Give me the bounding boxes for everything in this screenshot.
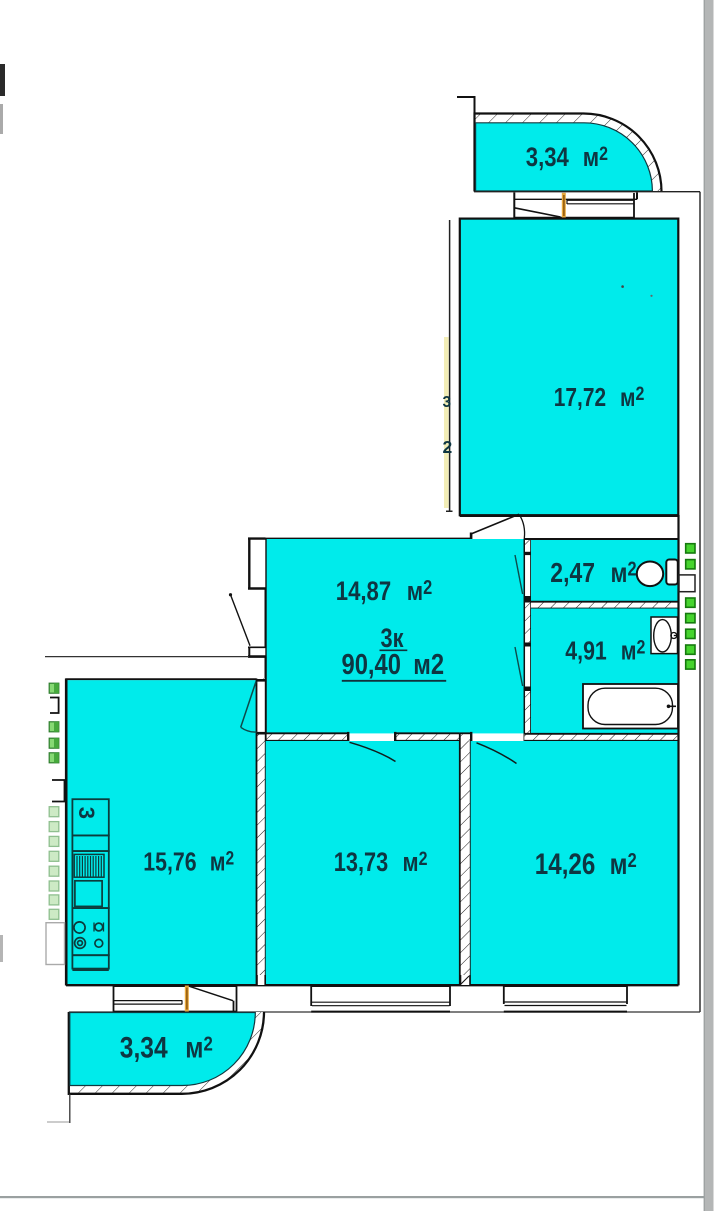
svg-text:14,26м2: 14,26м2: [535, 848, 637, 881]
svg-text:90,40м2: 90,40м2: [342, 648, 445, 681]
svg-text:13,73м2: 13,73м2: [334, 847, 428, 877]
svg-text:3: 3: [443, 394, 452, 411]
svg-text:4,91м2: 4,91м2: [565, 636, 645, 666]
svg-text:3,34м2: 3,34м2: [120, 1030, 213, 1064]
svg-text:3,34м2: 3,34м2: [526, 142, 608, 172]
svg-text:17,72м2: 17,72м2: [554, 383, 645, 412]
svg-text:2: 2: [443, 437, 453, 457]
svg-text:2,47м2: 2,47м2: [550, 557, 636, 589]
svg-text:14,87м2: 14,87м2: [336, 575, 432, 606]
svg-text:3: 3: [74, 807, 99, 819]
svg-text:15,76м2: 15,76м2: [143, 847, 234, 877]
